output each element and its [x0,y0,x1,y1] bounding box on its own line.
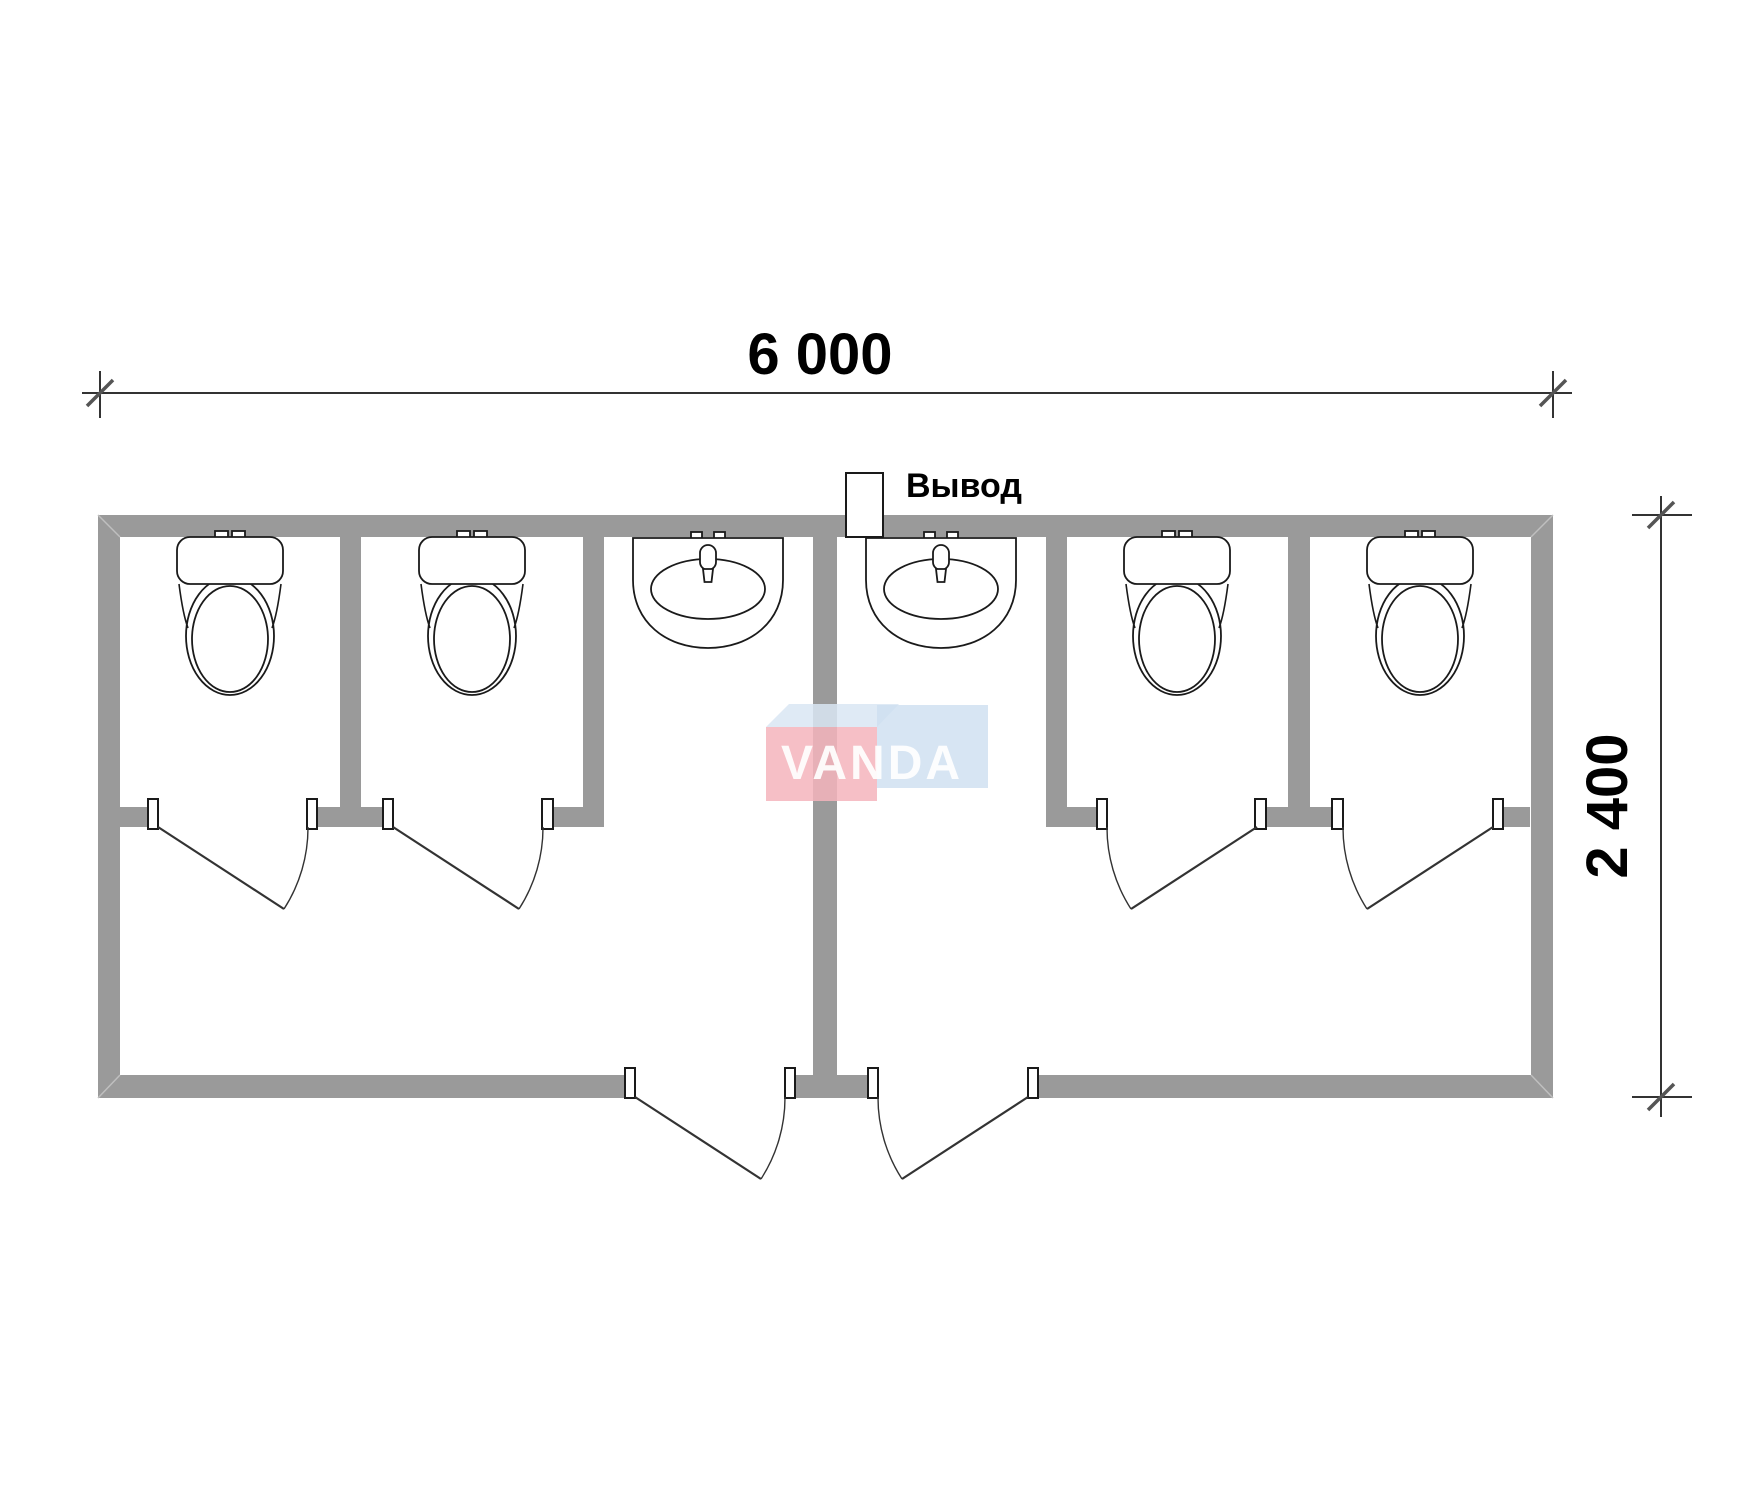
outlet-box [846,473,883,537]
door-jamb [1255,799,1266,829]
door-swing-arc [1343,827,1367,909]
outer-wall-left [98,515,120,1098]
stall-door-3 [1107,827,1257,909]
height-dimension: 2 400 [1575,496,1692,1117]
door-leaf [902,1097,1028,1179]
sink-1 [633,532,783,648]
toilet-2 [419,531,525,695]
entrance-door-jamb [868,1068,878,1098]
stall-door-4 [1343,827,1493,909]
door-jamb [1332,799,1343,829]
door-leaf [393,827,519,909]
door-leaf [635,1097,761,1179]
door-jamb [1097,799,1107,829]
floor-plan-canvas: Вывод VANDA 6 000 2 400 [0,0,1763,1503]
door-swing-arc [761,1097,785,1179]
door-jamb [1493,799,1503,829]
partition-stall2-sink1 [583,537,604,827]
stall-front-wall-stub [317,807,383,827]
entrance-door-left [635,1097,785,1179]
watermark-text: VANDA [781,737,963,790]
entrance-door-jamb [625,1068,635,1098]
floor-plan-drawing: Вывод VANDA 6 000 2 400 [0,0,1763,1503]
outer-wall-top [98,515,1553,537]
door-jamb [542,799,553,829]
stall-door-1 [158,827,308,909]
door-swing-arc [1107,827,1131,909]
sink-2 [866,532,1016,648]
toilet-4 [1367,531,1473,695]
door-swing-arc [284,827,308,909]
partition-stall3-stall4 [1288,537,1310,807]
door-leaf [1131,827,1257,909]
stall-front-wall-stub [1266,807,1332,827]
stall-door-2 [393,827,543,909]
width-dimension: 6 000 [82,322,1572,418]
outer-wall-bottom-right [1038,1075,1553,1098]
width-dimension-label: 6 000 [747,322,892,387]
entrance-door-jamb [1028,1068,1038,1098]
entrance-door-right [878,1097,1028,1179]
outer-wall-bottom-center [795,1075,868,1098]
toilet-3 [1124,531,1230,695]
stall-front-wall-stub [120,807,148,827]
door-jamb [307,799,317,829]
door-leaf [158,827,284,909]
partition-sink2-stall3 [1046,537,1067,827]
outer-wall-bottom-left [98,1075,625,1098]
door-swing-arc [878,1097,902,1179]
outlet-label: Вывод [906,467,1022,505]
toilet-1 [177,531,283,695]
partition-stall1-stall2 [340,537,361,827]
door-swing-arc [519,827,543,909]
vanda-watermark: VANDA [766,704,988,801]
door-jamb [148,799,158,829]
stall-front-wall-stub [1503,807,1530,827]
outer-wall-right [1531,515,1553,1098]
stall-front-wall-stub [1067,807,1097,827]
stall-front-wall-stub [553,807,583,827]
door-leaf [1367,827,1493,909]
entrance-door-jamb [785,1068,795,1098]
door-jamb [383,799,393,829]
height-dimension-label: 2 400 [1575,733,1640,878]
partition-central [813,537,837,1075]
